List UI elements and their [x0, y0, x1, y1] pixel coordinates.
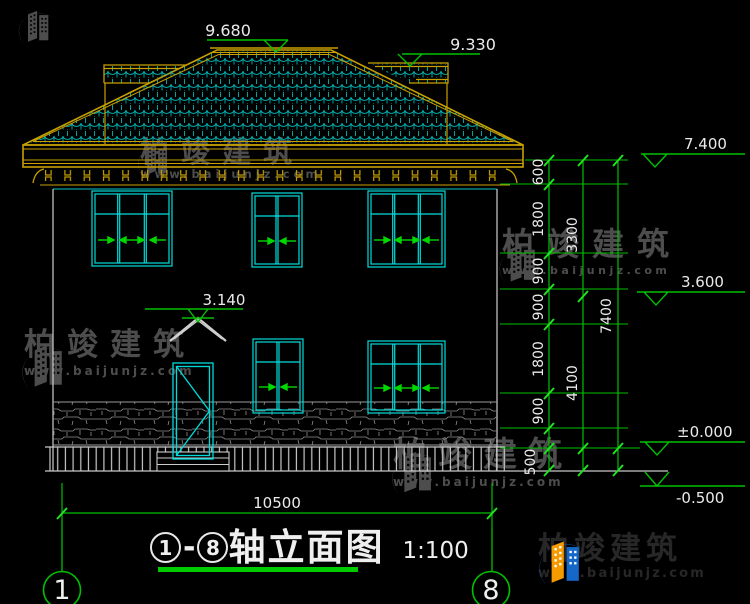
drawing-title: 1 - 8 轴立面图 1:100 [150, 529, 469, 566]
dimension-chain-mid-labels: 3300 4100 [565, 217, 581, 401]
elevation-value: 3.140 [203, 291, 246, 309]
plinth-band [45, 447, 668, 471]
dim-value: 900 [531, 258, 547, 285]
dim-value: 600 [531, 159, 547, 186]
elevation-value: 9.680 [205, 21, 251, 40]
cad-elevation-drawing: 柏竣建筑 www.baijunjz.com 柏竣建筑 www.baijunjz.… [0, 0, 750, 604]
sash-arrows [374, 385, 439, 391]
dim-value: 10500 [253, 494, 301, 512]
dim-value: 900 [531, 398, 547, 425]
dim-value: 4100 [565, 365, 581, 401]
sash-arrows [98, 237, 166, 243]
dim-value: 500 [523, 449, 539, 476]
side-ridge-marker: 9.330 [398, 35, 496, 66]
title-axis-end: 8 [197, 532, 228, 563]
title-scale: 1:100 [402, 538, 468, 564]
right-elevation-labels: 7.400 3.600 ±0.000 -0.500 [676, 135, 733, 507]
dim-value: 1800 [531, 201, 547, 237]
dim-value: 900 [531, 294, 547, 321]
axis-number: 8 [482, 575, 499, 604]
title-text: 轴立面图 [228, 529, 384, 566]
bottom-dimension: 10500 [57, 483, 497, 527]
elevation-value: -0.500 [676, 489, 724, 507]
window-upper-left [92, 191, 172, 266]
window-upper-middle [252, 193, 302, 267]
dentil-strip [44, 170, 506, 181]
title-dash: - [183, 530, 195, 565]
sash-arrows [259, 384, 297, 390]
elevation-value: 7.400 [684, 135, 727, 153]
elevation-value: ±0.000 [677, 423, 733, 441]
title-underline [158, 567, 358, 572]
elevation-value: 3.600 [681, 273, 724, 291]
sash-arrows [374, 237, 439, 243]
axis-bubble-8: 8 [473, 527, 510, 604]
dim-value: 3300 [565, 217, 581, 253]
elevation-value: 9.330 [450, 35, 496, 54]
canopy-elevation-marker: 3.140 [145, 291, 245, 322]
brand-logo-icon [532, 533, 590, 593]
sash-arrows [258, 238, 296, 244]
dimension-total-label: 7400 [599, 298, 615, 334]
elevation-linework: 3.140 9.680 9.330 7.400 3.600 ±0.000 -0.… [0, 0, 750, 604]
axis-bubble-1: 1 [44, 521, 81, 604]
axis-number: 1 [53, 575, 70, 604]
window-upper-right [368, 191, 445, 267]
dim-value: 1800 [531, 341, 547, 377]
title-axis-start: 1 [150, 532, 181, 563]
stone-wainscot [53, 402, 497, 445]
dimension-extension-lines [500, 160, 640, 448]
brand-footer: 柏竣建筑 www.baijunjz.com [532, 533, 706, 581]
eave-fascia [23, 145, 523, 189]
